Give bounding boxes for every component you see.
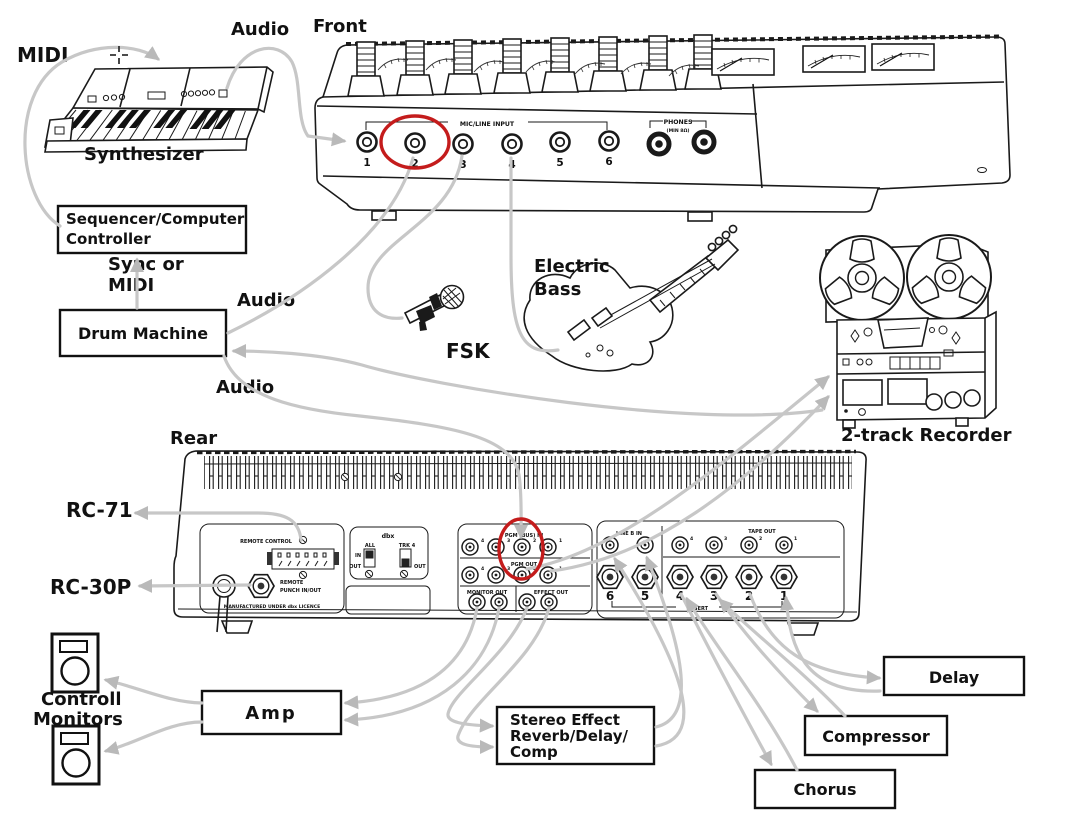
monitor-to-amp-2 [346,608,499,720]
mic-line-input-label: MIC/LINE INPUT [460,121,515,128]
input-number-5: 5 [556,157,563,169]
input-jack-4 [503,135,522,154]
tape-out-label: TAPE OUT [748,529,776,535]
rc71-label: RC-71 [66,498,133,522]
phones-jack-left [649,134,669,154]
amp-label: Amp [245,703,297,724]
sync-label-2: MIDI [108,275,154,296]
remote-punch-jack [248,575,274,598]
fsk-cable [234,351,822,415]
tape-num-2: 2 [759,536,762,542]
pgm-in-label: PGM (BUS) IN [505,533,543,539]
dbx-all-label: ALL [365,543,376,549]
monitor-speaker-bottom [53,726,99,784]
dbx-licence-label: MANUFACTURED UNDER dbx LICENCE [224,604,321,610]
pgm-out-num-4: 4 [481,566,484,572]
remote-punch-label-1: REMOTE [280,580,304,586]
tape-num-4: 4 [690,536,693,542]
dbx-trk4-label: TRK 4 [399,543,416,549]
front-foot-right [688,212,712,221]
tape-num-3: 3 [724,536,727,542]
dbx-out-right-label: OUT [414,564,426,570]
electric-bass-label-1: Electric [534,256,610,277]
sequencer-label-1: Sequencer/Computer [66,210,245,228]
input-jack-5 [551,133,570,152]
monitor-speaker-top [52,634,98,692]
dbx-in-label: IN [355,553,361,559]
pgm-in-num-1: 1 [559,538,562,544]
synthesizer-label: Synthesizer [84,144,204,165]
dbx-out-left-label: OUT [349,564,361,570]
left-reel [820,236,904,320]
rear-label: Rear [170,428,217,449]
synthesizer-illustration [45,67,273,152]
delay-label: Delay [929,668,980,687]
mixer-front-illustration: MIC/LINE INPUT 1 2 3 4 5 6 PHONES (MIN 8… [315,35,1010,221]
sequencer-label-2: Controller [66,230,151,248]
pgm-in-num-4: 4 [481,538,484,544]
input-jack-2 [406,134,425,153]
rc30p-label: RC-30P [50,575,131,599]
phones-label: PHONES [664,119,693,126]
front-label: Front [313,16,367,37]
manual-connection-diagram: MIC/LINE INPUT 1 2 3 4 5 6 PHONES (MIN 8… [0,0,1083,823]
rc30p-cable [140,585,250,586]
remote-control-label: REMOTE CONTROL [240,539,293,545]
dbx-label: dbx [382,533,395,540]
phones-jack-right [694,132,714,152]
vu-meters [712,44,934,75]
stereo-effect-label-3: Comp [510,743,558,761]
chorus-label: Chorus [794,780,857,799]
audio-synth-label: Audio [231,19,289,40]
two-track-recorder-illustration [820,235,996,428]
microphone-illustration [405,286,464,332]
monitors-label-2: Monitors [33,709,123,730]
phones-sub-label: (MIN 8Ω) [666,128,689,134]
chorus-return [687,599,797,770]
drum-machine-label: Drum Machine [78,324,208,343]
sync-label-1: Sync or [108,254,184,275]
remote-punch-label-2: PUNCH IN/OUT [280,588,322,594]
compressor-label: Compressor [822,727,930,746]
ventilation-fins [204,456,852,489]
right-reel [907,235,991,319]
input-jack-3 [454,135,473,154]
input-jack-6 [600,132,619,151]
diagram-canvas: MIC/LINE INPUT 1 2 3 4 5 6 PHONES (MIN 8… [0,0,1083,823]
tape-num-1: 1 [794,536,797,542]
recorder-label: 2-track Recorder [841,425,1012,446]
fsk-label: FSK [446,339,491,363]
electric-bass-label-2: Bass [534,279,581,300]
input-jack-1 [358,133,377,152]
monitors-label-1: Controll [41,689,122,710]
keyboard-keys [47,108,258,141]
input-number-1: 1 [363,157,370,169]
pgm-in-num-3: 3 [507,538,510,544]
monitor-to-amp-1 [346,608,477,703]
insert-num-6: 6 [606,589,614,603]
pgm-in-num-2: 2 [533,538,536,544]
input-number-6: 6 [605,156,612,168]
